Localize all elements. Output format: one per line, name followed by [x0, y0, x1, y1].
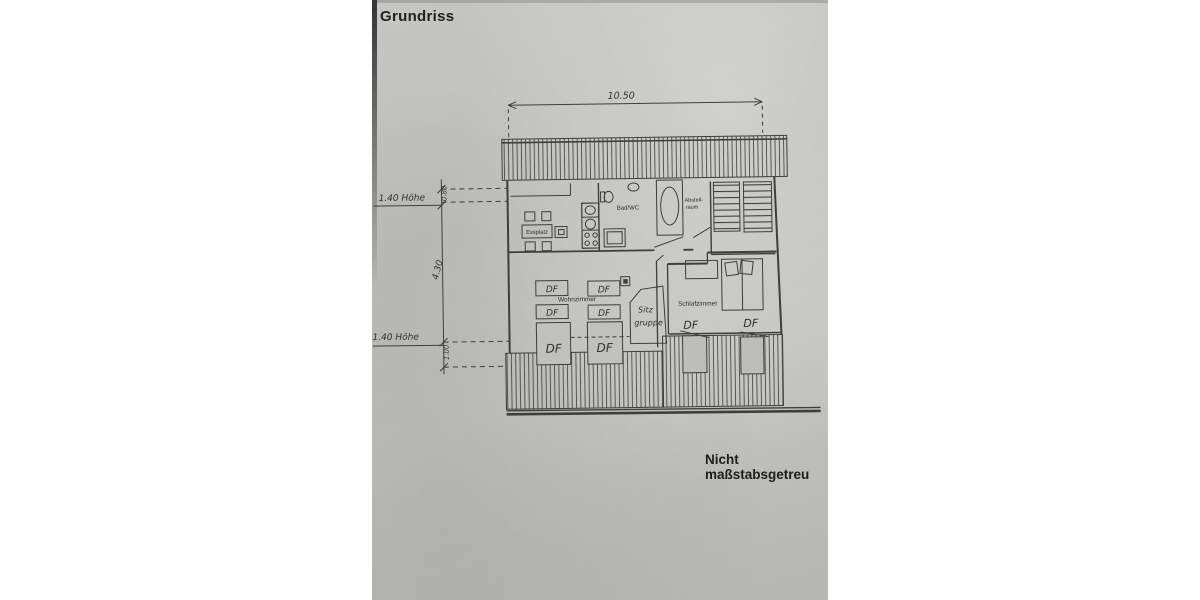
sink-icon: [582, 203, 599, 217]
top-dimension: 10.50: [508, 89, 763, 141]
roof-band-top: [502, 135, 788, 180]
pillow-icon: [725, 261, 739, 276]
sofa-group-icon: [630, 286, 667, 343]
df-label: DF: [596, 341, 613, 355]
kitchen-strip: [582, 203, 600, 248]
chair-icon: [542, 212, 551, 221]
roof-window-df: DF: [536, 280, 568, 295]
room-label-abstellraum-2: raum: [686, 205, 699, 211]
roof-window-df-large: DF: [536, 322, 571, 364]
screenshot-canvas: Grundriss Nicht maßstabsgetreu 10.50: [0, 0, 1200, 600]
depth-label: 4.30: [431, 259, 446, 281]
df-label: DF: [546, 309, 559, 319]
oven-icon: [555, 226, 567, 237]
lower-offset-label: 1.00: [443, 344, 451, 360]
essplatz-room: Essplatz: [522, 211, 568, 251]
stair-flight: [713, 182, 740, 231]
abstellraum-room: Abstell- raum: [685, 197, 711, 237]
df-label: DF: [546, 285, 559, 295]
room-label-schlafzimmer: Schlafzimmer: [678, 300, 718, 308]
df-label: DF: [683, 319, 699, 332]
wohnzimmer-room: Wohnzimmer DF DF DF DF DF: [536, 277, 631, 365]
washbasin-icon: [628, 183, 639, 191]
roof-window-df: DF: [588, 305, 620, 319]
bad-wc-room: Bad/WC: [600, 180, 683, 248]
roof-window-df-large: DF: [587, 322, 623, 364]
bed-icon: [721, 259, 763, 311]
sitzgruppe-label-2: gruppe: [634, 318, 663, 327]
chair-icon: [542, 242, 551, 251]
toilet-icon: [600, 191, 613, 202]
sitzgruppe: Sitz gruppe: [630, 286, 667, 343]
sitzgruppe-label-1: Sitz: [638, 305, 654, 314]
room-label-wohnzimmer: Wohnzimmer: [558, 296, 597, 304]
df-label: DF: [598, 309, 611, 319]
door-swing: [654, 237, 683, 247]
chair-icon: [525, 242, 535, 251]
roof-window-opening: [683, 336, 708, 373]
chair-icon: [525, 212, 535, 221]
df-label: DF: [545, 342, 562, 356]
left-annotations: 1.40 Höhe 1.40 Höhe 0.80 4.30 1.00: [370, 178, 510, 375]
basin-icon: [585, 219, 595, 229]
height-note-upper: 1.40 Höhe: [378, 193, 425, 204]
room-label-abstellraum-1: Abstell-: [685, 198, 704, 204]
floor-plan-photo: Grundriss Nicht maßstabsgetreu 10.50: [372, 0, 828, 600]
shower-icon: [604, 229, 625, 247]
room-label-essplatz: Essplatz: [526, 230, 548, 236]
stair-flight: [743, 182, 772, 232]
door-swing: [693, 227, 710, 237]
room-label-bad-wc: Bad/WC: [617, 205, 640, 211]
upper-offset-label: 0.80: [440, 185, 448, 201]
total-width-label: 10.50: [607, 90, 634, 101]
stove-icon: [582, 230, 599, 248]
roof-window-opening: [741, 337, 765, 374]
bathtub-icon: [656, 180, 683, 235]
roof-window-df: DF: [588, 281, 620, 296]
df-label: DF: [743, 317, 759, 330]
staircase: [713, 182, 772, 233]
roof-window-df: DF: [536, 304, 568, 318]
floor-plan-drawing: 10.50: [368, 0, 832, 600]
height-note-lower: 1.40 Höhe: [372, 333, 419, 344]
tv-icon: [621, 277, 630, 286]
df-label: DF: [598, 285, 611, 295]
